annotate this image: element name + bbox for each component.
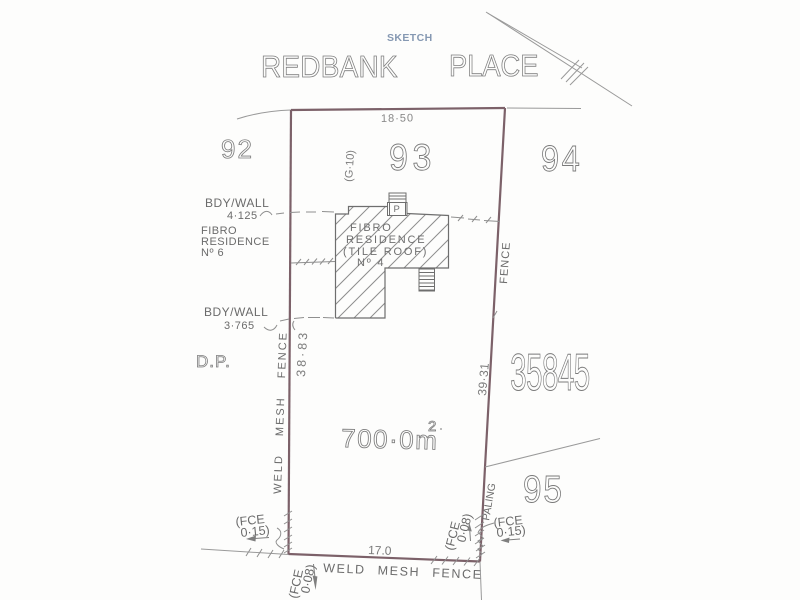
- svg-text:0·08): 0·08): [454, 512, 475, 544]
- svg-text:4·125: 4·125: [227, 210, 258, 222]
- svg-text:92: 92: [221, 134, 254, 164]
- svg-text:WELD MESH FENCE: WELD MESH FENCE: [272, 331, 290, 494]
- svg-text:Nº 6: Nº 6: [201, 247, 224, 259]
- svg-text:BDY/WALL: BDY/WALL: [204, 305, 268, 319]
- svg-text:3·765: 3·765: [224, 320, 255, 332]
- svg-text:WELD MESH FENCE: WELD MESH FENCE: [323, 561, 483, 582]
- svg-text:SKETCH: SKETCH: [387, 32, 433, 44]
- svg-text:17.0: 17.0: [368, 543, 392, 558]
- svg-text:(G·10): (G·10): [343, 150, 357, 183]
- svg-text:95: 95: [523, 468, 564, 510]
- svg-text:REDBANK: REDBANK: [261, 50, 398, 85]
- svg-text:18·50: 18·50: [381, 112, 414, 125]
- svg-text:BDY/WALL: BDY/WALL: [205, 196, 269, 210]
- svg-text:35845: 35845: [510, 343, 590, 401]
- svg-text:0·15): 0·15): [496, 523, 526, 540]
- svg-text:RESIDENCE: RESIDENCE: [346, 234, 426, 246]
- svg-text:FIBRO: FIBRO: [350, 222, 393, 234]
- svg-text:94: 94: [541, 139, 582, 179]
- svg-text:38·83: 38·83: [294, 330, 310, 378]
- svg-text:39·31: 39·31: [475, 362, 492, 396]
- svg-text:93: 93: [389, 137, 436, 179]
- svg-text:2: 2: [428, 418, 436, 435]
- svg-text:P: P: [394, 204, 400, 215]
- svg-text:Nº 4: Nº 4: [357, 257, 385, 269]
- svg-text:PLACE: PLACE: [449, 49, 538, 83]
- svg-text:700·0m: 700·0m: [341, 423, 439, 456]
- svg-text:FENCE: FENCE: [498, 241, 513, 284]
- svg-text:(TILE ROOF): (TILE ROOF): [343, 246, 428, 258]
- svg-text:D.P.: D.P.: [196, 352, 231, 371]
